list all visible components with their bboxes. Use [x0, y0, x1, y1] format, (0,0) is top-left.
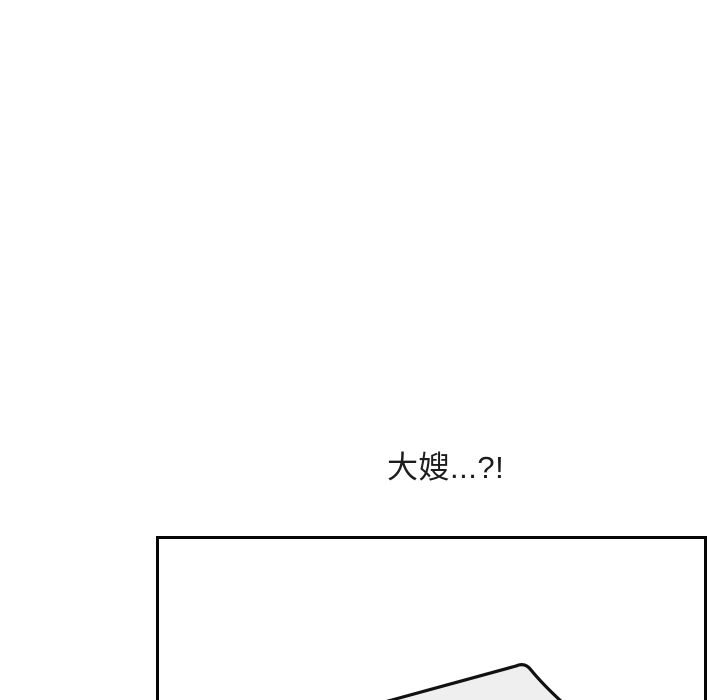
speech-text: 大嫂...?! [387, 451, 504, 485]
comic-panel [156, 536, 707, 700]
webtoon-page: 大嫂...?! [0, 0, 720, 700]
panel-artwork [159, 539, 704, 700]
